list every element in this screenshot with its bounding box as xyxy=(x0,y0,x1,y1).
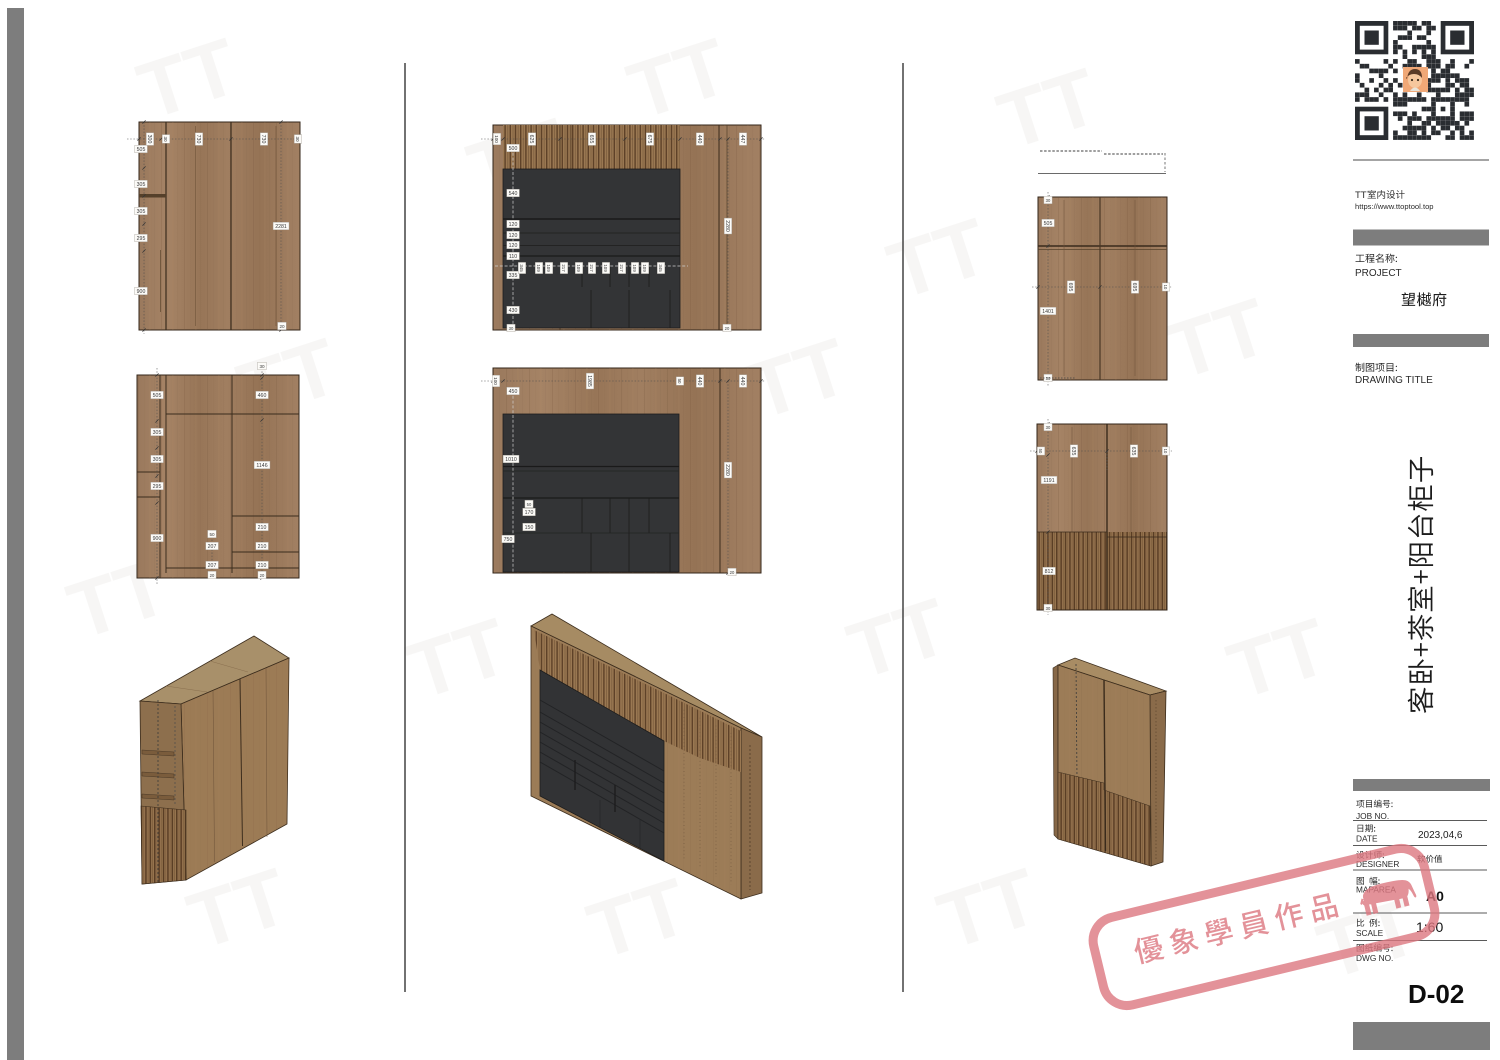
svg-text:305: 305 xyxy=(137,209,146,215)
svg-text:440: 440 xyxy=(696,135,702,144)
svg-text:675: 675 xyxy=(646,135,652,144)
svg-text:JOB NO.: JOB NO. xyxy=(1356,811,1389,821)
svg-text:30: 30 xyxy=(163,136,168,142)
svg-text:2023,04,6: 2023,04,6 xyxy=(1418,830,1463,841)
svg-text:300: 300 xyxy=(146,135,152,144)
svg-text:345: 345 xyxy=(519,264,524,272)
svg-text:505: 505 xyxy=(1044,221,1053,227)
svg-text:120: 120 xyxy=(509,243,518,249)
svg-text:109: 109 xyxy=(632,264,637,272)
svg-text:305: 305 xyxy=(153,430,162,436)
svg-text:DWG NO.: DWG NO. xyxy=(1356,953,1393,963)
svg-text:50: 50 xyxy=(209,532,215,537)
svg-text:TT: TT xyxy=(1355,190,1367,201)
svg-text:170: 170 xyxy=(525,510,534,516)
svg-text:210: 210 xyxy=(258,544,267,550)
svg-text:DRAWING TITLE: DRAWING TITLE xyxy=(1355,375,1433,386)
svg-text:217: 217 xyxy=(589,264,594,272)
svg-text:PROJECT: PROJECT xyxy=(1355,268,1402,279)
svg-text:1985: 1985 xyxy=(586,375,592,387)
svg-text:50: 50 xyxy=(677,379,682,384)
svg-text:https://www.ttoptool.top: https://www.ttoptool.top xyxy=(1355,202,1434,211)
svg-text:30: 30 xyxy=(1046,376,1051,381)
svg-text:207: 207 xyxy=(208,563,217,569)
svg-text:625: 625 xyxy=(528,135,534,144)
svg-text:305: 305 xyxy=(137,182,146,188)
svg-text:30: 30 xyxy=(259,364,265,369)
svg-text:655: 655 xyxy=(588,135,594,144)
svg-text:210: 210 xyxy=(258,525,267,531)
svg-text:305: 305 xyxy=(153,457,162,463)
svg-text:109: 109 xyxy=(536,264,541,272)
svg-text:500: 500 xyxy=(509,146,518,152)
svg-text:217: 217 xyxy=(561,264,566,272)
svg-text:750: 750 xyxy=(504,537,513,543)
svg-text:150: 150 xyxy=(525,525,534,531)
svg-text:110: 110 xyxy=(509,254,517,260)
svg-text:109: 109 xyxy=(642,264,647,272)
svg-text:20: 20 xyxy=(210,573,215,578)
svg-text:345: 345 xyxy=(658,264,663,272)
svg-text:900: 900 xyxy=(137,289,146,295)
svg-text:207: 207 xyxy=(208,544,217,550)
svg-text:109: 109 xyxy=(546,264,551,272)
svg-text:540: 540 xyxy=(509,191,518,197)
svg-text:635: 635 xyxy=(1070,447,1076,456)
svg-text:295: 295 xyxy=(137,236,146,242)
svg-text:695: 695 xyxy=(1067,283,1073,292)
svg-text:2281: 2281 xyxy=(275,224,287,230)
svg-text:440: 440 xyxy=(696,377,702,386)
svg-text:505: 505 xyxy=(137,147,146,153)
svg-text:30: 30 xyxy=(509,326,514,331)
svg-text:30: 30 xyxy=(295,136,300,142)
svg-text:505: 505 xyxy=(153,393,162,399)
svg-text:100: 100 xyxy=(493,377,498,385)
svg-text:100: 100 xyxy=(494,135,499,143)
svg-text:1146: 1146 xyxy=(256,463,267,469)
svg-text:1010: 1010 xyxy=(505,457,517,463)
svg-text:30: 30 xyxy=(1046,606,1051,611)
svg-text:20: 20 xyxy=(279,324,285,329)
svg-text:900: 900 xyxy=(153,536,162,542)
svg-text:210: 210 xyxy=(258,563,267,569)
svg-text:335: 335 xyxy=(509,273,518,279)
svg-text:2280: 2280 xyxy=(724,464,730,476)
svg-text:217: 217 xyxy=(619,264,624,272)
svg-text:1191: 1191 xyxy=(1043,478,1054,484)
svg-text:430: 430 xyxy=(509,308,518,314)
svg-text:450: 450 xyxy=(509,389,518,395)
svg-text:730: 730 xyxy=(260,135,266,144)
svg-text:635: 635 xyxy=(1130,447,1136,456)
svg-text:109: 109 xyxy=(603,264,608,272)
svg-text:10: 10 xyxy=(1163,285,1168,290)
svg-text:30: 30 xyxy=(1046,198,1051,203)
svg-text:30: 30 xyxy=(1046,425,1051,430)
svg-text:SCALE: SCALE xyxy=(1356,928,1384,938)
svg-text:DATE: DATE xyxy=(1356,834,1378,844)
svg-text:10: 10 xyxy=(1163,449,1168,454)
svg-text:1401: 1401 xyxy=(1042,309,1054,315)
svg-text:50: 50 xyxy=(1038,449,1043,454)
svg-text:50: 50 xyxy=(527,502,532,507)
svg-text:460: 460 xyxy=(258,393,267,399)
svg-text:730: 730 xyxy=(195,135,201,144)
svg-text:120: 120 xyxy=(509,222,518,228)
svg-text:20: 20 xyxy=(260,573,265,578)
svg-text:109: 109 xyxy=(576,264,581,272)
svg-text:447: 447 xyxy=(739,135,745,144)
svg-text:295: 295 xyxy=(153,484,162,490)
svg-text:D-02: D-02 xyxy=(1408,979,1464,1009)
svg-text:812: 812 xyxy=(1045,569,1054,575)
svg-text:440: 440 xyxy=(739,377,745,386)
svg-text:695: 695 xyxy=(1131,283,1137,292)
svg-text:20: 20 xyxy=(725,326,730,331)
svg-text:120: 120 xyxy=(509,233,518,239)
svg-text:20: 20 xyxy=(730,570,735,575)
svg-text:2280: 2280 xyxy=(724,220,730,232)
